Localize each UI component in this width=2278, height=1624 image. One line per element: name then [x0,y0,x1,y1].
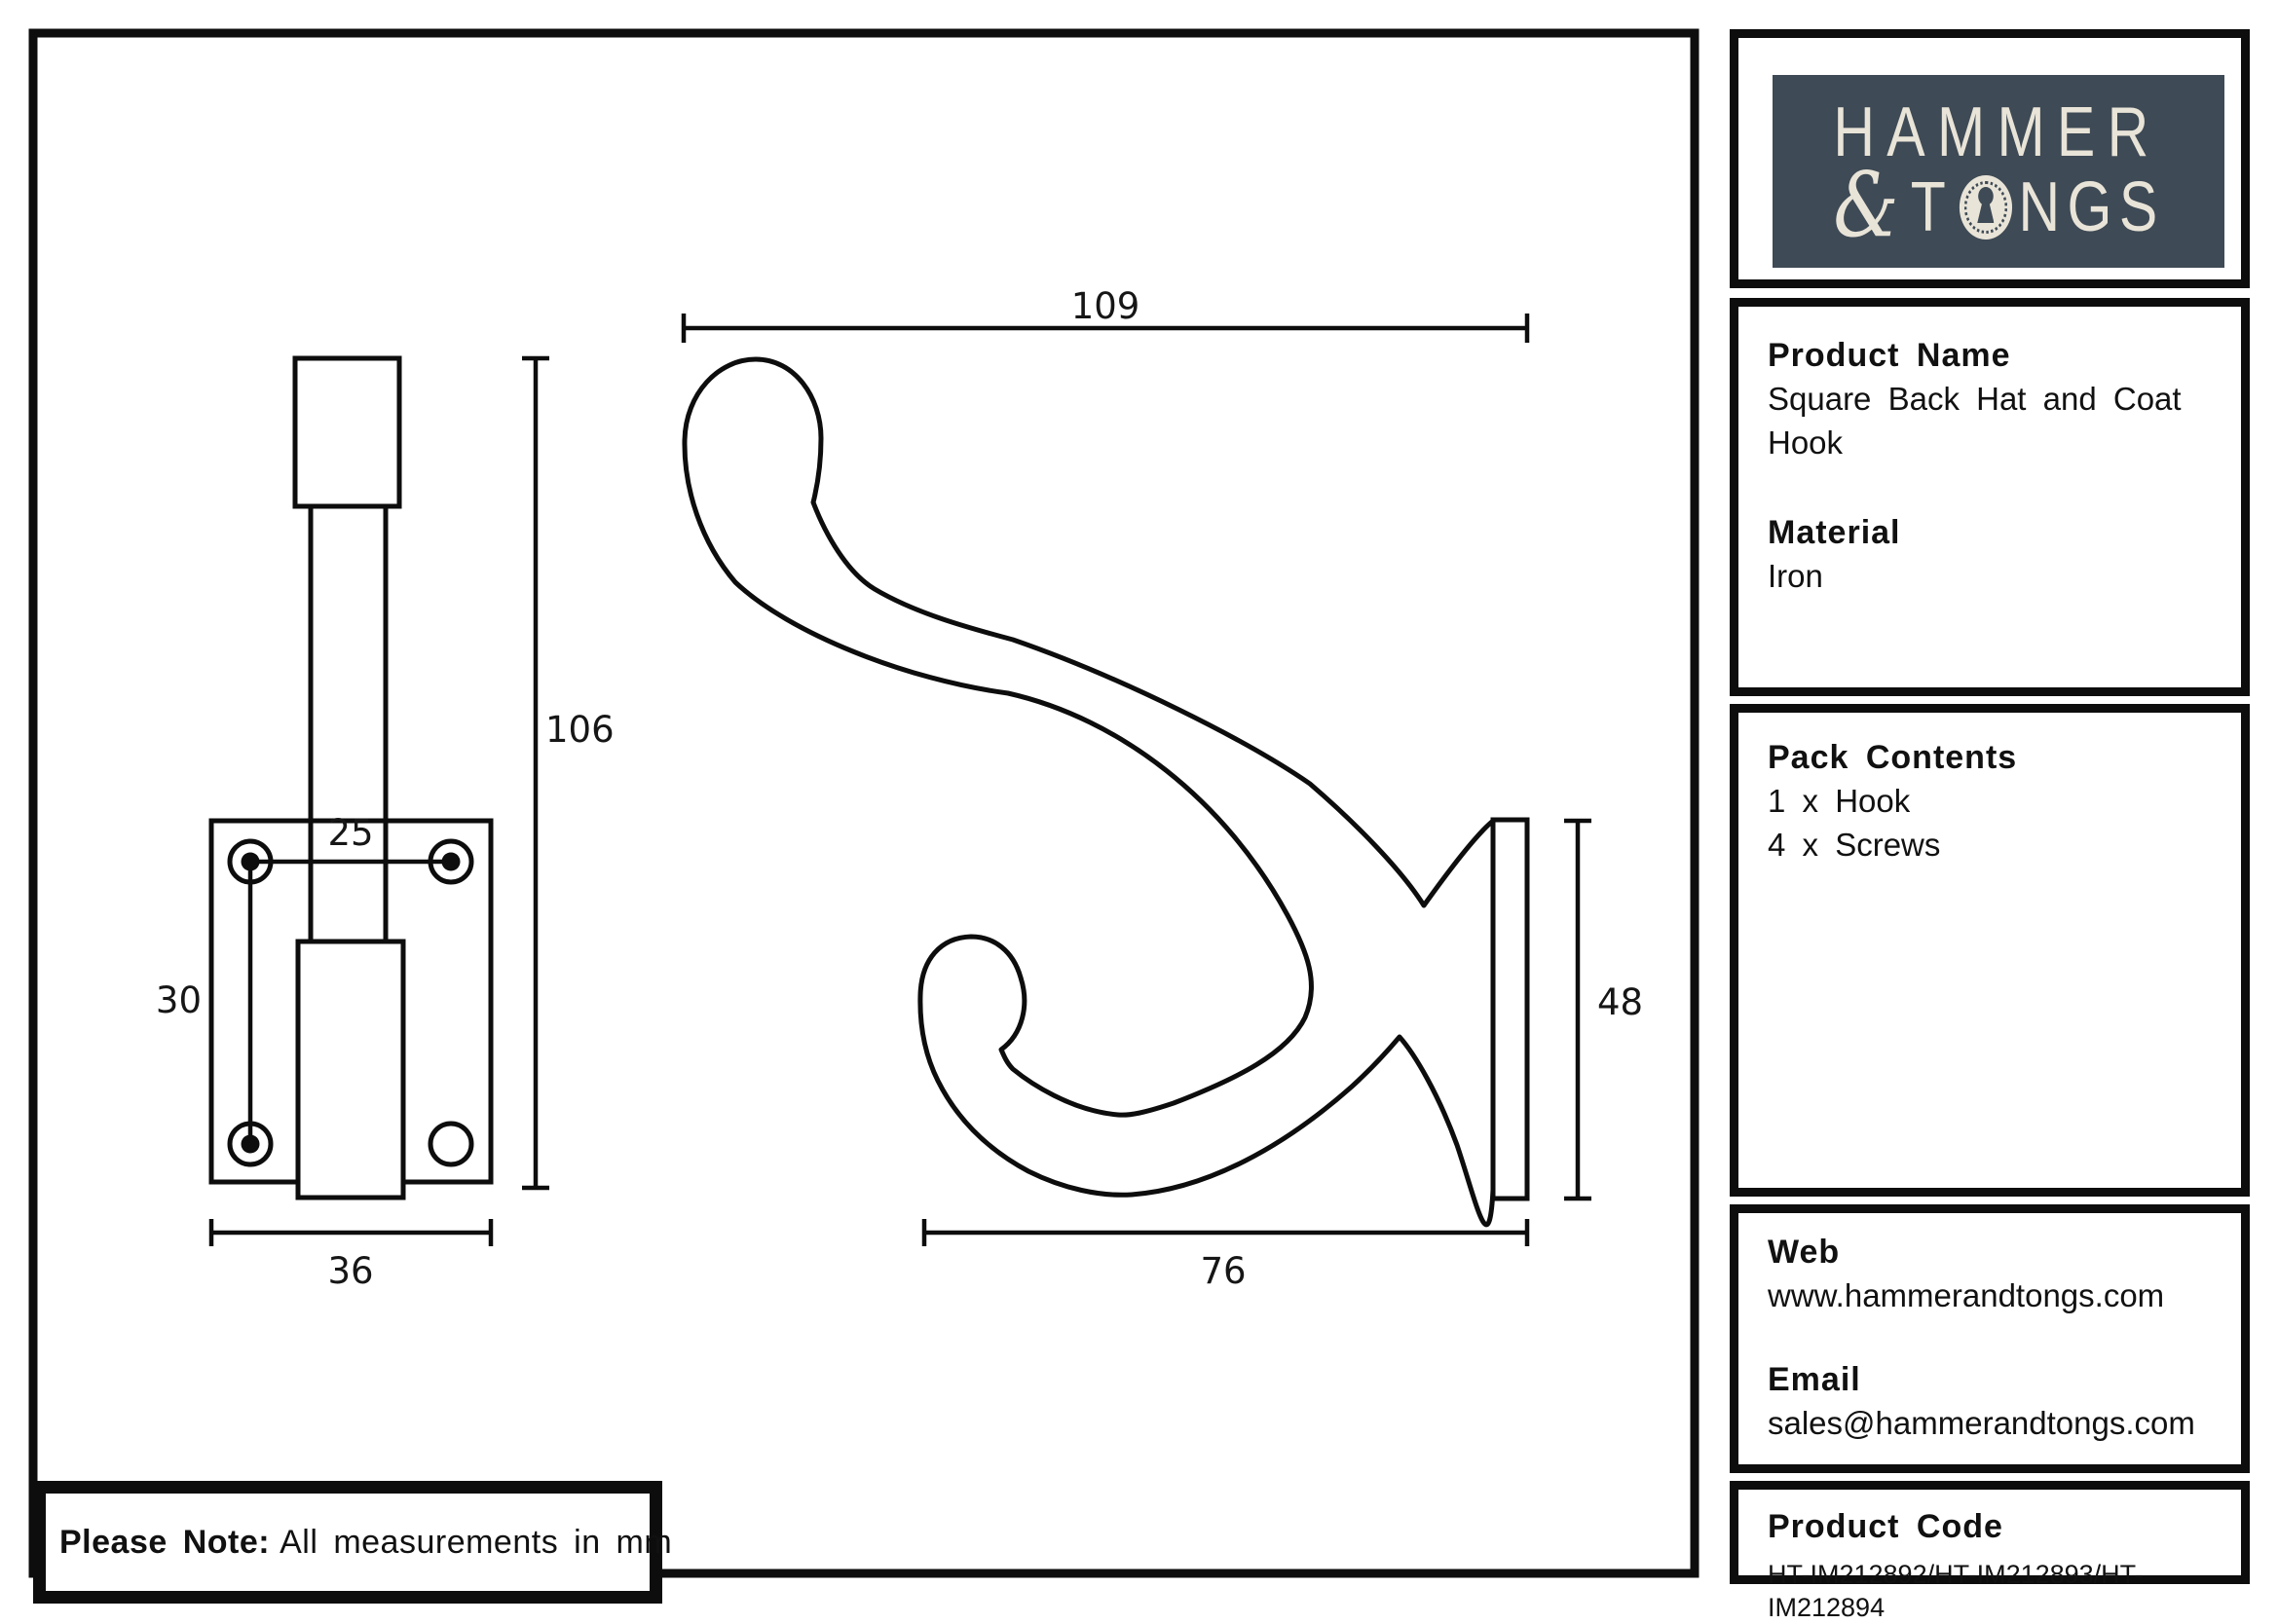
dim-line-76 [924,1219,1527,1246]
material-heading: Material [1768,511,2212,554]
front-view-stem [311,506,386,941]
screw-hole-center [242,853,260,871]
dim-line-36 [211,1219,491,1246]
web-heading: Web [1768,1231,2212,1273]
dim-label-plate-width: 36 [327,1250,373,1292]
product-code-heading: Product Code [1768,1505,2212,1548]
product-name-line1: Square Back Hat and Coat [1768,377,2212,421]
logo-line2-ngs: NGS [2018,168,2164,246]
ampersand-glyph: & [1833,176,1906,235]
dim-label-overall-length: 109 [1071,285,1140,327]
product-name-line2: Hook [1768,421,2212,464]
logo-line2-t: T [1910,168,1952,246]
email-value: sales@hammerandtongs.com [1768,1401,2212,1445]
keyhole-icon [1959,175,2011,240]
dim-label-overall-height: 106 [545,709,615,751]
pack-contents-heading: Pack Contents [1768,736,2212,779]
dim-label-hole-spacing-h: 25 [327,812,373,854]
pack-item: 1 x Hook [1768,779,2212,823]
product-code-panel: Product Code HT-IM212892/HT-IM212893/HT-… [1730,1481,2250,1584]
dim-label-plate-height: 48 [1597,981,1643,1023]
note-text: All measurements in mm [280,1524,672,1562]
front-view: 106 25 30 36 [156,358,615,1292]
side-view-hook-outline [685,359,1493,1225]
front-view-top-block [295,358,399,506]
screw-hole-center [242,1135,260,1154]
dim-label-hole-spacing-v: 30 [156,979,202,1021]
note-label: Please Note: [59,1524,270,1562]
pack-contents-panel: Pack Contents 1 x Hook 4 x Screws [1730,704,2250,1197]
product-panel: Product Name Square Back Hat and Coat Ho… [1730,298,2250,696]
screw-hole-center [442,853,461,871]
dim-line-106 [522,358,549,1188]
side-view: 109 48 76 [684,285,1643,1292]
logo-line2: & T NGS [1833,168,2164,246]
contact-panel: Web www.hammerandtongs.com Email sales@h… [1730,1204,2250,1473]
product-code-value: HT-IM212892/HT-IM212893/HT-IM212894 [1768,1558,2212,1624]
screw-hole [430,1124,471,1164]
pack-item: 4 x Screws [1768,823,2212,867]
drawing-border [33,33,1695,1573]
web-value: www.hammerandtongs.com [1768,1273,2212,1317]
product-name-heading: Product Name [1768,334,2212,377]
side-view-plate [1493,820,1527,1199]
measurement-note: Please Note: All measurements in mm [33,1481,662,1604]
hammer-tongs-logo: HAMMER & T NGS [1773,75,2224,268]
dim-line-48 [1564,821,1591,1199]
dim-label-projection: 76 [1200,1250,1246,1292]
material-value: Iron [1768,554,2212,598]
front-view-boss [298,941,403,1198]
logo-panel: HAMMER & T NGS [1730,29,2250,288]
email-heading: Email [1768,1358,2212,1401]
